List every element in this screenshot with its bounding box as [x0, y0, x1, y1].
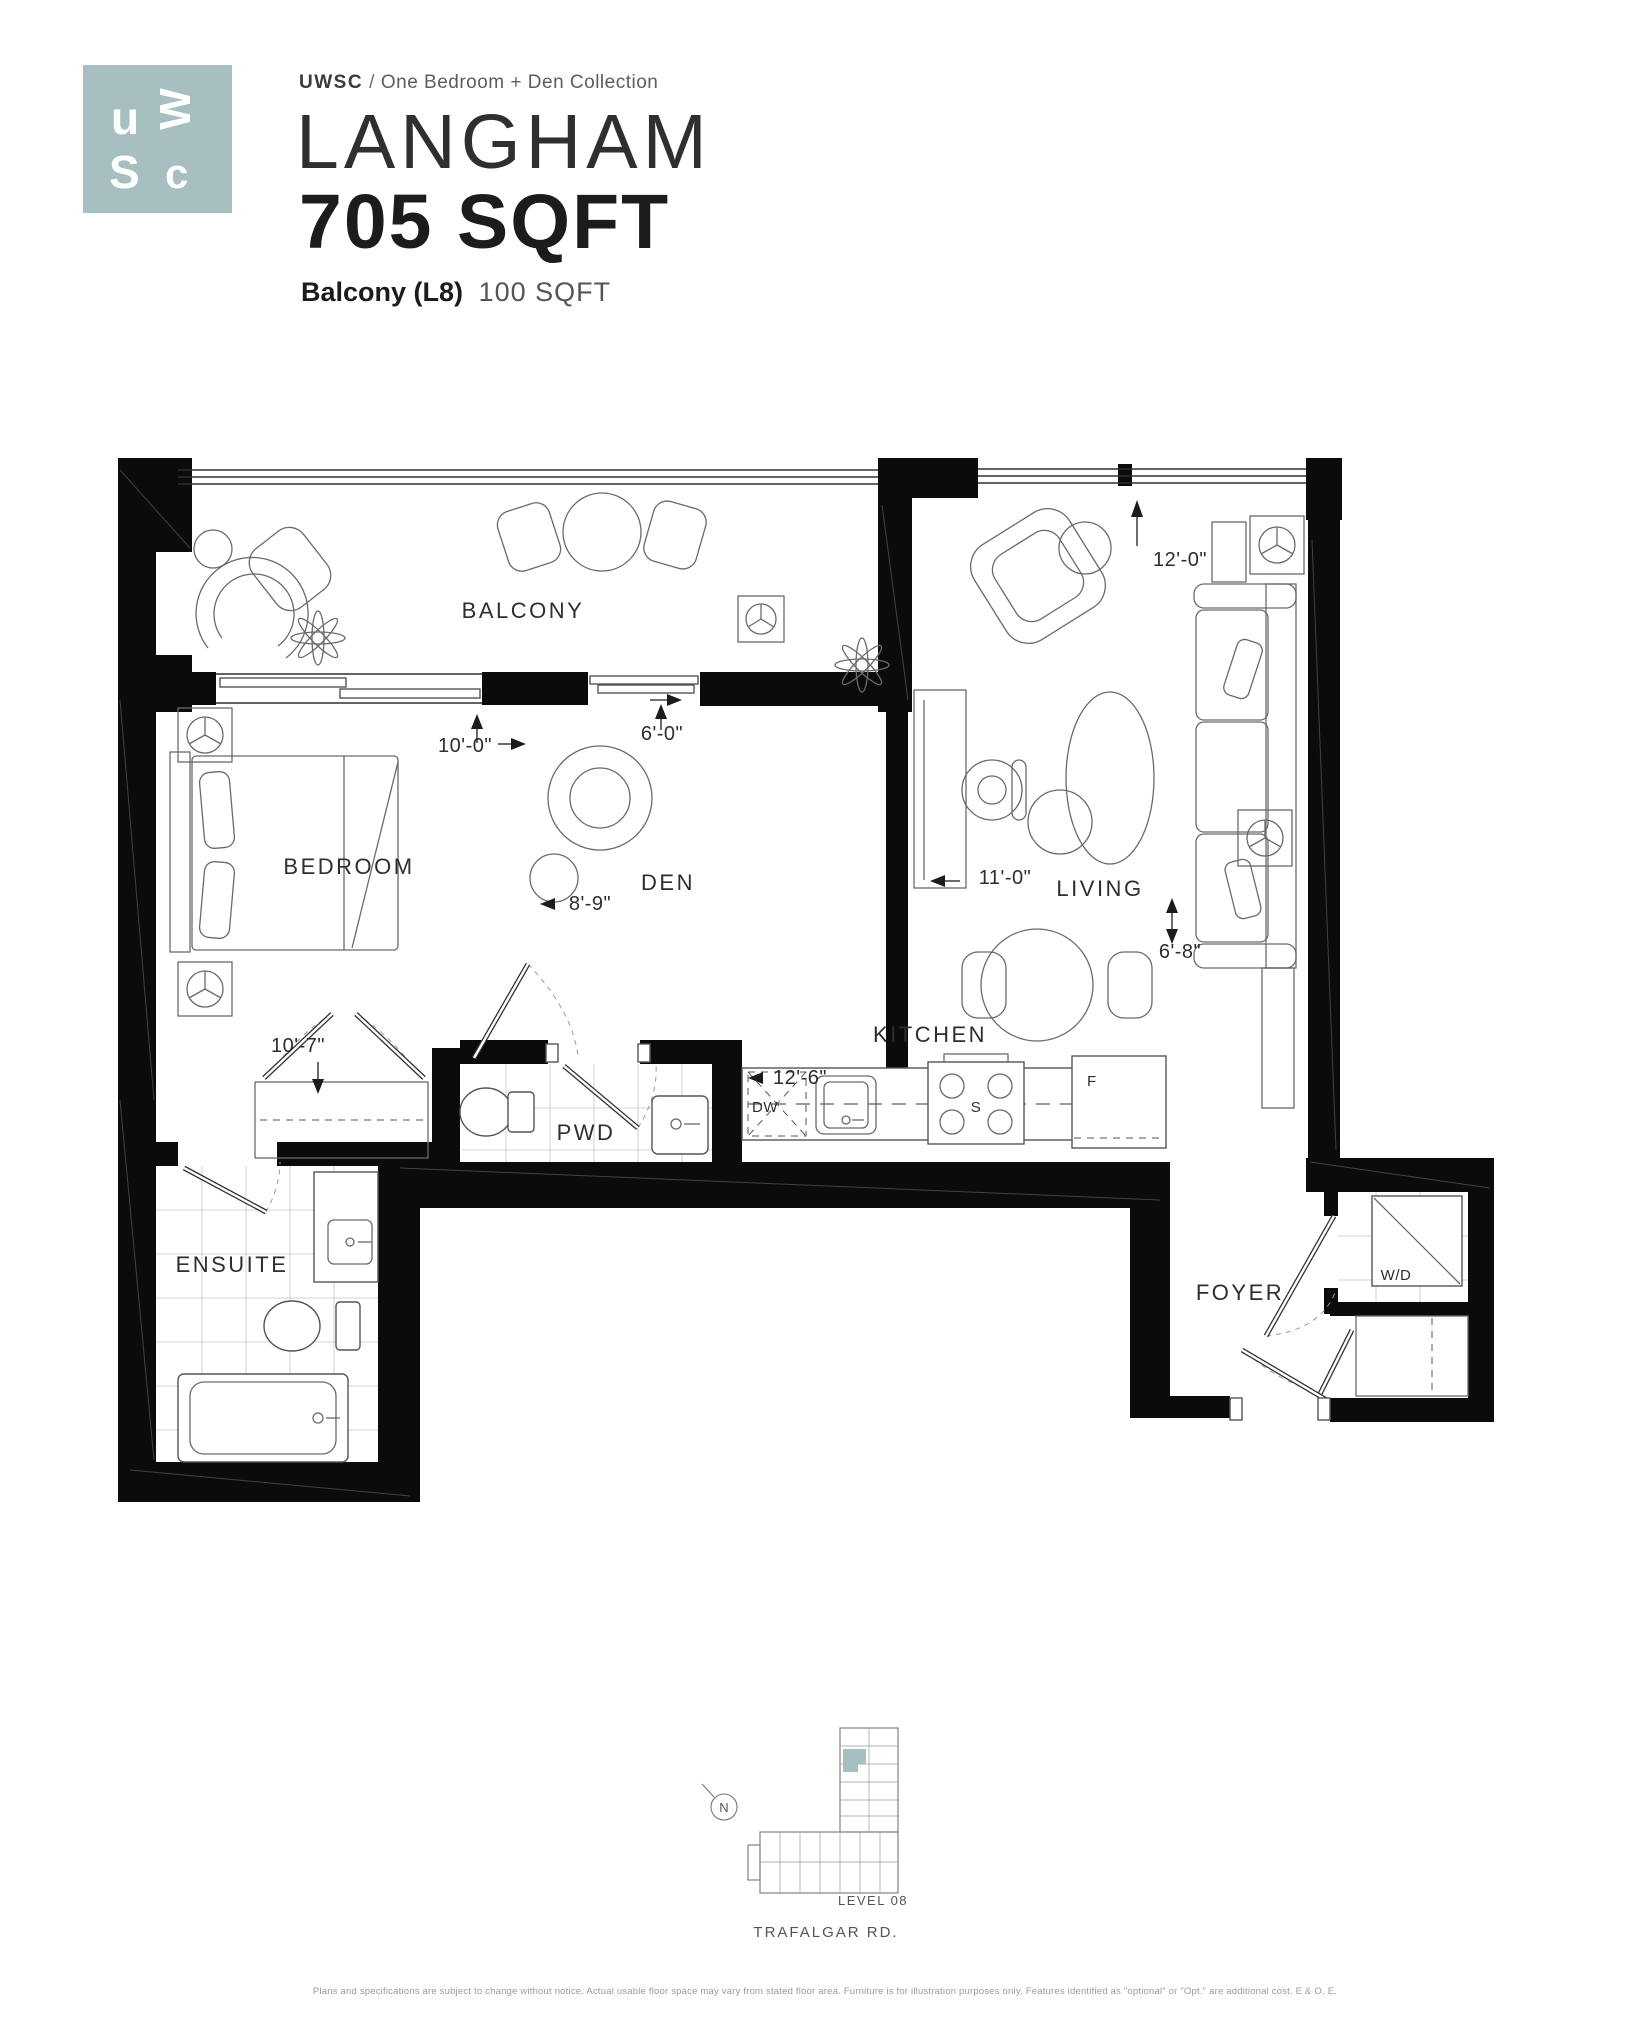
- keyplan-unit-highlight: [843, 1749, 866, 1772]
- dim-living-depth: 11'-0": [979, 867, 1031, 889]
- north-label: N: [719, 1800, 728, 1815]
- dim-living-width: 12'-0": [1153, 549, 1207, 571]
- plant-icon: [291, 611, 345, 665]
- keyplan: N LEVEL 08 TRAFALGAR RD.: [702, 1728, 908, 1941]
- room-balcony: BALCONY: [462, 598, 585, 623]
- floorplan-sheet: u W S c UWSC/One Bedroom + Den Collectio…: [0, 0, 1650, 2025]
- room-den: DEN: [641, 870, 695, 895]
- keyplan-street: TRAFALGAR RD.: [753, 1924, 898, 1941]
- room-living: LIVING: [1056, 876, 1143, 901]
- den-furniture: [530, 690, 1026, 902]
- room-foyer: FOYER: [1196, 1280, 1284, 1305]
- room-pwd: PWD: [557, 1120, 616, 1145]
- walls: [118, 458, 1494, 1502]
- bedroom-furniture: [170, 752, 398, 952]
- dim-bedroom-depth: 10'-7": [271, 1035, 325, 1057]
- dim-living-side: 6'-8": [1159, 941, 1201, 963]
- dishwasher-label: DW: [752, 1099, 778, 1116]
- ensuite-fixtures: [178, 1172, 378, 1462]
- dim-den-window: 6'-0": [641, 723, 683, 745]
- fridge-icon: [1072, 1056, 1166, 1148]
- disclaimer-text: Plans and specifications are subject to …: [0, 1986, 1650, 1997]
- room-bedroom: BEDROOM: [283, 854, 414, 879]
- room-kitchen: KITCHEN: [873, 1022, 987, 1047]
- ceiling-symbols: [178, 516, 1304, 1016]
- keyplan-building: [748, 1728, 898, 1893]
- dim-kitchen-run: 12'-6": [773, 1067, 827, 1089]
- balcony-furniture: [194, 493, 889, 692]
- windows: [173, 465, 1306, 703]
- dim-bedroom-width: 10'-0": [438, 735, 492, 757]
- fridge-label: F: [1087, 1073, 1097, 1090]
- living-furniture: [961, 499, 1296, 1108]
- room-ensuite: ENSUITE: [176, 1252, 289, 1277]
- stove-label: S: [971, 1099, 982, 1116]
- north-compass-icon: N: [702, 1784, 737, 1820]
- dim-den-width: 8'-9": [569, 893, 611, 915]
- keyplan-level: LEVEL 08: [838, 1893, 908, 1908]
- floorplan-drawing: DW S F: [0, 0, 1650, 2025]
- washer-dryer-label: W/D: [1381, 1267, 1412, 1284]
